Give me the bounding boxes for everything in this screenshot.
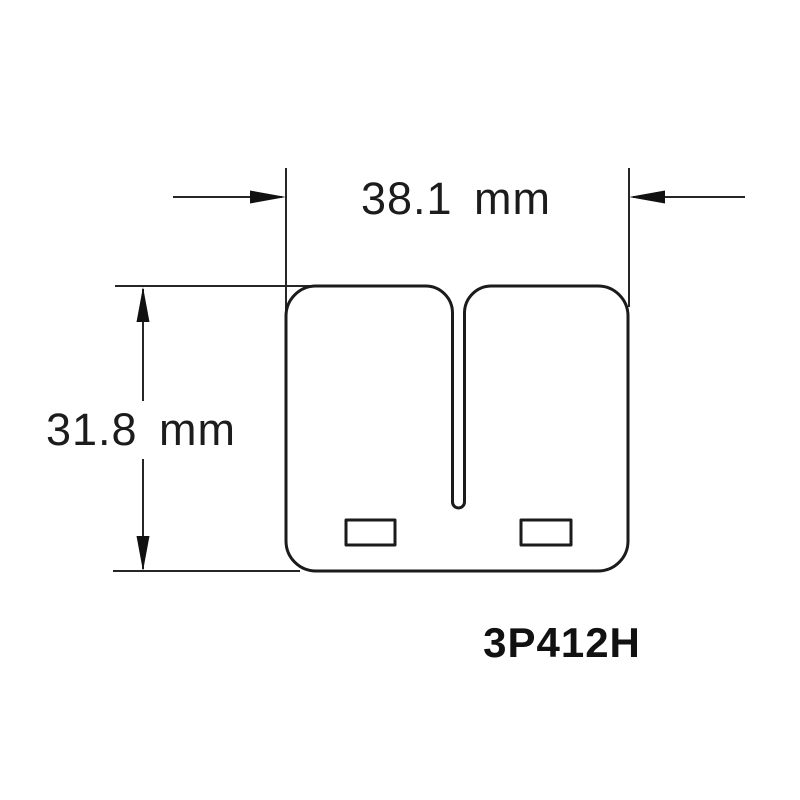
height-dimension-label: 31.8 mm [46, 404, 236, 455]
arrow-up-icon [137, 287, 150, 322]
width-dimension: 38.1 mm [173, 168, 745, 312]
reed-petal-outline [286, 286, 628, 571]
right-pad-rectangle [521, 520, 571, 545]
arrow-left-icon [629, 191, 665, 204]
height-dimension: 31.8 mm [46, 286, 312, 571]
part-number-label: 3P412H [483, 619, 641, 666]
reed-petal-technical-drawing: 38.1 mm 31.8 mm 3P412H [0, 0, 800, 800]
width-dimension-label: 38.1 mm [361, 173, 551, 224]
drawing-canvas: 38.1 mm 31.8 mm 3P412H [0, 0, 800, 800]
arrow-down-icon [137, 536, 150, 571]
left-pad-rectangle [346, 520, 395, 545]
arrow-right-icon [250, 191, 286, 204]
